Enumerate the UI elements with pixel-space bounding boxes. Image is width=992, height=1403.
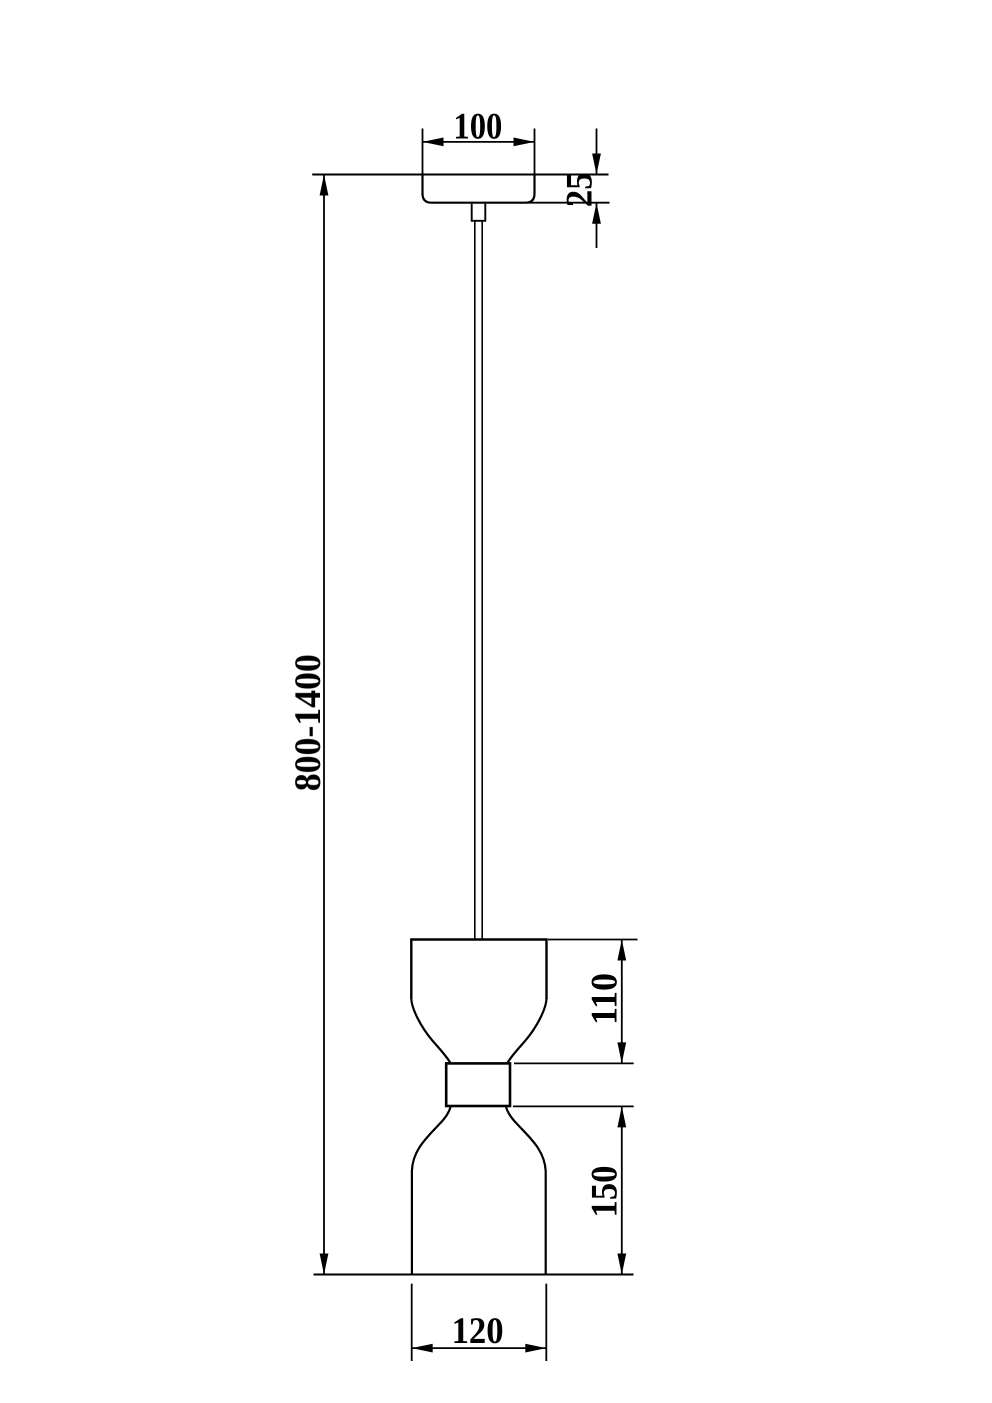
svg-text:25: 25: [560, 172, 601, 207]
svg-text:150: 150: [585, 1166, 626, 1218]
svg-text:120: 120: [452, 1311, 504, 1352]
svg-text:100: 100: [453, 106, 502, 147]
svg-text:110: 110: [585, 973, 626, 1025]
svg-text:800-1400: 800-1400: [288, 654, 329, 791]
